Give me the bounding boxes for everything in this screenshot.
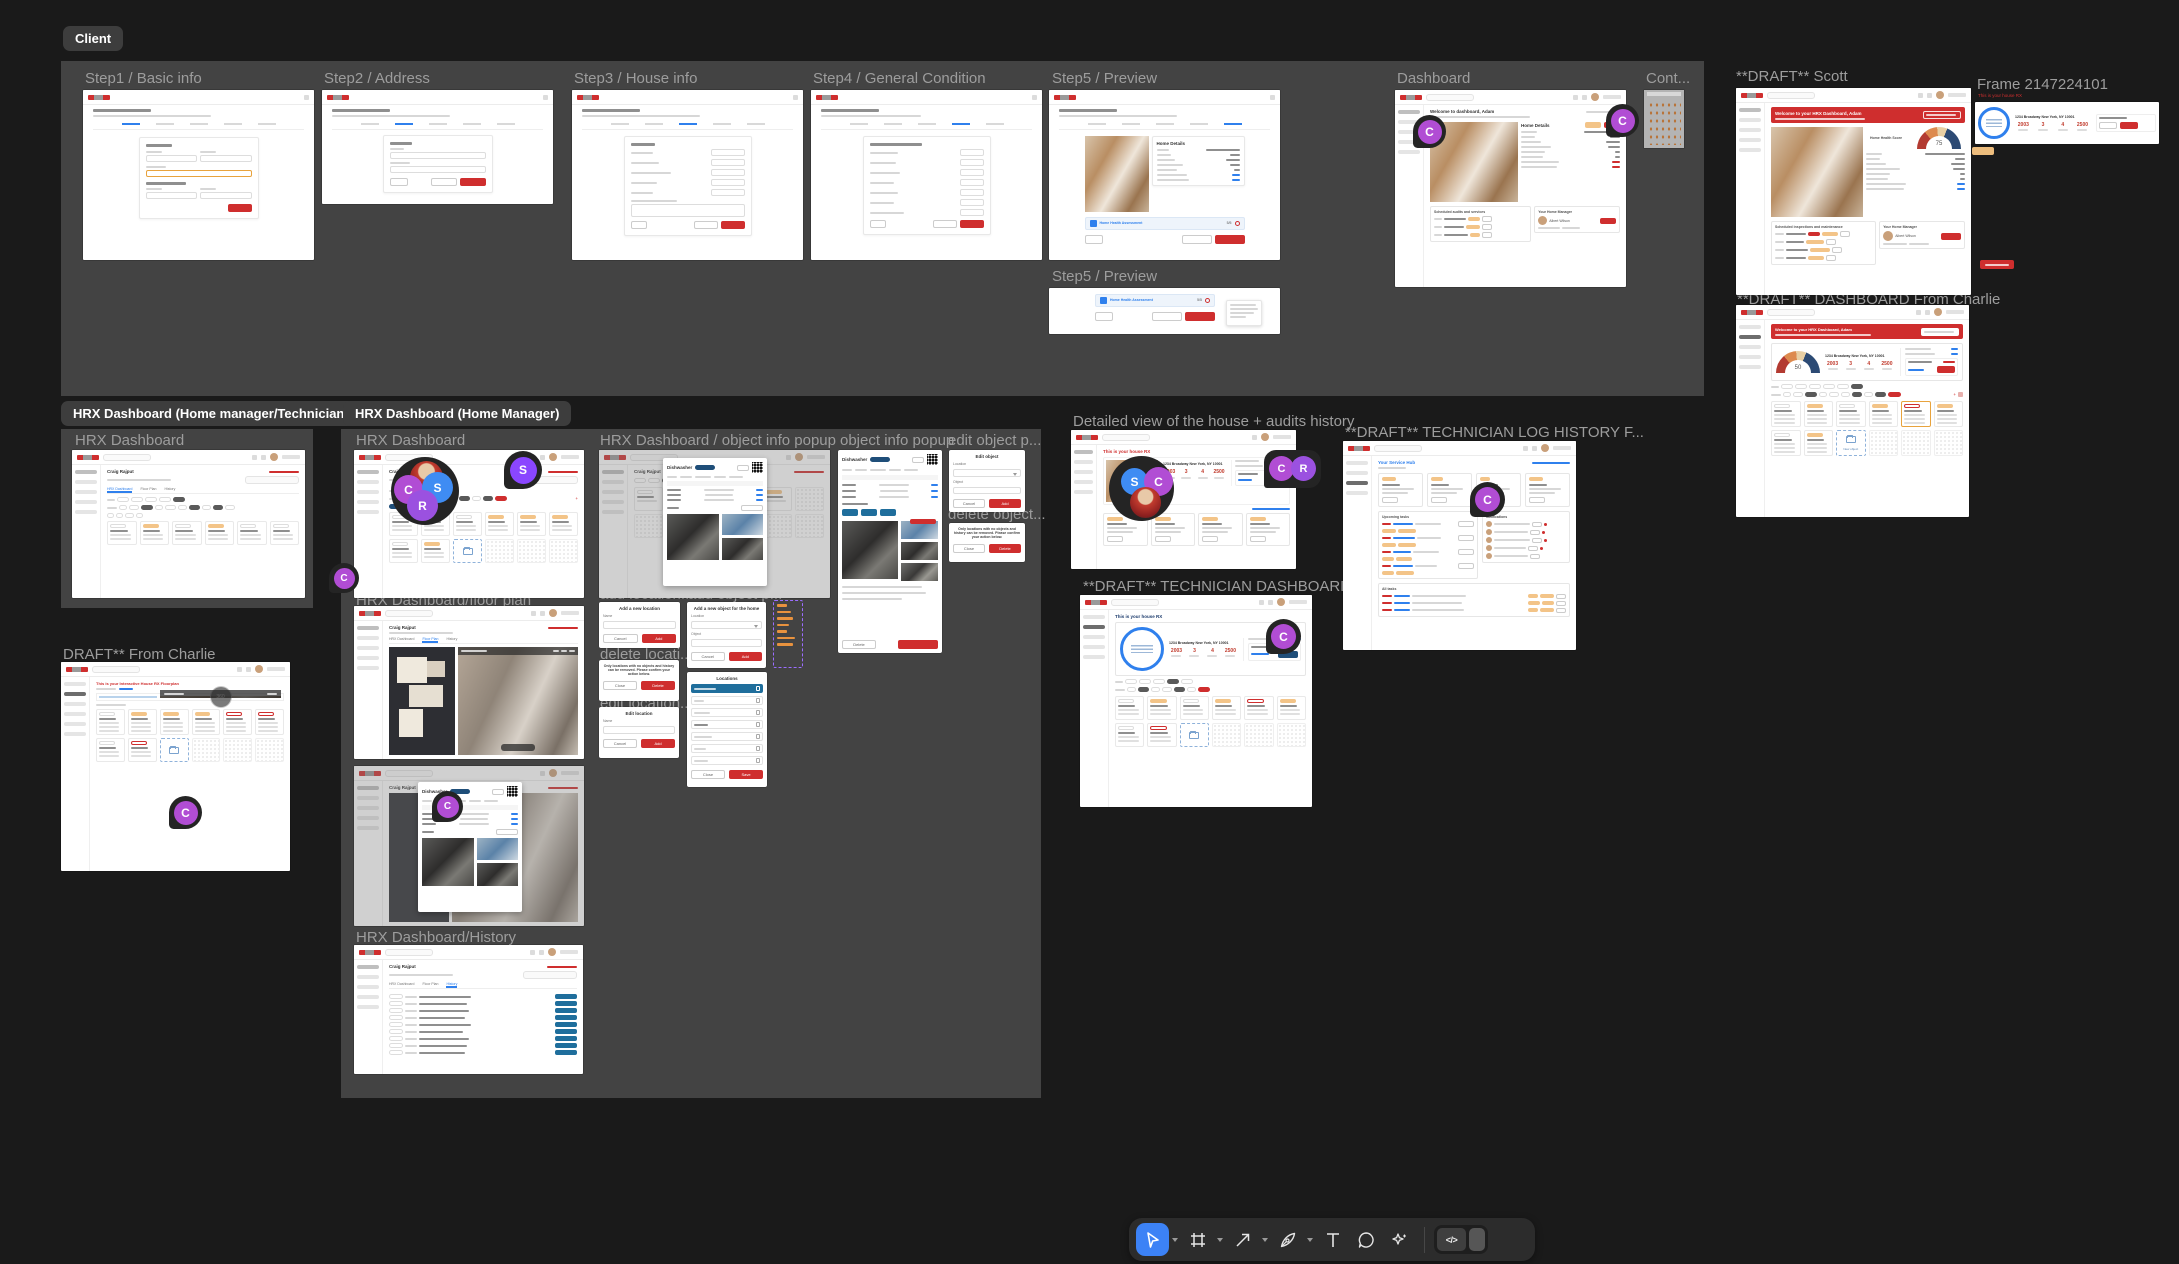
new-object-card [453,539,482,563]
frame214-red-caption: This is your house RX [1978,93,2022,98]
collaborator-avatar-photo[interactable] [1130,487,1161,518]
room-photo-360: 360 [160,696,281,698]
frame-label-hrx-object-info[interactable]: HRX Dashboard / object info popup [600,432,836,449]
arrow-icon [1233,1230,1253,1250]
alert-icon [1235,221,1240,226]
frame-tool-chevron[interactable] [1214,1223,1226,1256]
frame-label-draft-scott[interactable]: **DRAFT** Scott [1736,68,1848,85]
frame-thumb-locations[interactable]: Locations CloseSave [687,672,767,787]
collaborator-avatar-c[interactable]: C [1606,104,1639,137]
frame-thumb-step5b[interactable]: Home Health Assessment 5/5 [1049,288,1280,334]
qr-code [507,786,518,797]
dev-mode-knob[interactable] [1469,1228,1485,1251]
add-button-orange[interactable] [1972,147,1994,155]
frame-thumb-draft-scott[interactable]: Welcome to your HRX Dashboard, Adam Home… [1736,88,1971,295]
add-button: Add [642,634,677,643]
collaborator-cluster[interactable]: C S R [391,457,459,525]
score-donut [1978,107,2010,139]
frame-thumb-hrx-floorplan-popup[interactable]: Craig Rajput Dishwasher [354,766,584,926]
frame-label-step2[interactable]: Step2 / Address [324,70,430,87]
assessment-icon [1090,220,1097,227]
pen-icon [1278,1230,1298,1250]
move-tool[interactable] [1136,1223,1169,1256]
frame-thumb-delete-object[interactable]: Only locations with no objects and histo… [949,523,1025,562]
frame-thumb-edit-object[interactable]: Edit object Location Object CancelAdd [949,450,1025,512]
arrow-tool-chevron[interactable] [1259,1223,1271,1256]
frame-label-cont[interactable]: Cont... [1646,70,1690,87]
frame-thumb-draft-from-charlie[interactable]: This is your Interactive House RX Floorp… [61,662,290,871]
frame-thumb-add-location[interactable]: Add a new location Name CancelAdd [599,602,680,648]
frame-thumb-hrx-history[interactable]: Craig Rajput HRX DashboardFloor PlanHist… [354,945,583,1074]
welcome-banner: Welcome to your HRX Dashboard, Adam [1771,324,1963,339]
collaborator-avatar-r[interactable]: R [407,490,438,521]
frame-thumb-add-object[interactable]: Add a new object for the home Location O… [687,602,766,668]
frame-thumb-2147224101[interactable]: 1234 Broadway New York, NY 10001 2003 3 … [1975,102,2159,144]
frame-thumb-step1[interactable] [83,90,314,260]
frame-thumb-hrx-object-info[interactable]: Craig Rajput Dishwasher [599,450,830,598]
frame-label-step5b[interactable]: Step5 / Preview [1052,268,1157,285]
houserx-logo [327,95,349,100]
collaborator-avatar-s[interactable]: S [504,451,542,489]
dishwasher-popup: Dishwasher [663,458,767,586]
trash-icon [756,686,760,691]
sparkle-icon [1389,1230,1409,1250]
frame-thumb-step5[interactable]: Home Details Home Health Assessment 5/5 [1049,90,1280,260]
figma-toolbar: </> [1129,1218,1535,1261]
frame-label-step3[interactable]: Step3 / House info [574,70,697,87]
welcome-banner: Welcome to your HRX Dashboard, Adam [1771,107,1965,123]
health-gauge: 50 [1776,351,1820,374]
frame-thumb-draft-tech-log[interactable]: Your Service Hub Upcoming tasks [1343,441,1576,650]
new-object-card: New object [1836,430,1866,456]
frame-label-dashboard[interactable]: Dashboard [1397,70,1470,87]
collaborator-avatar-c[interactable]: C [432,791,463,822]
qr-code [927,454,938,465]
frame-thumb-step3[interactable] [572,90,803,260]
frame-thumb-hrx-tech[interactable]: Craig Rajput HRX DashboardFloor PlanHist… [72,450,305,598]
frame-icon [1188,1230,1208,1250]
dev-mode-toggle[interactable]: </> [1434,1225,1488,1254]
frame-label-step4[interactable]: Step4 / General Condition [813,70,986,87]
frame-label-step1[interactable]: Step1 / Basic info [85,70,202,87]
cursor-icon [1143,1230,1163,1250]
frame-thumb-step2[interactable] [322,90,553,204]
score-donut [1120,627,1164,671]
pen-tool[interactable] [1271,1223,1304,1256]
calendar-grid [1647,99,1681,145]
dishwasher-photo [842,521,898,579]
dishwasher-photo [422,838,474,886]
frame-thumb-step4[interactable] [811,90,1042,260]
floorplan-panel [389,647,455,755]
condition-tag [910,519,936,524]
menu-icon [304,95,309,100]
frame-label-detailed-view[interactable]: Detailed view of the house + audits hist… [1073,413,1354,430]
frame-thumb-delete-location[interactable]: Only locations with no objects and histo… [599,660,679,701]
section-badge-hm-technician[interactable]: HRX Dashboard (Home manager/Technician) [61,401,361,426]
text-icon [1323,1230,1343,1250]
frame-label-hrx-history[interactable]: HRX Dashboard/History [356,929,516,946]
frame-label-draft-tech-dash[interactable]: **DRAFT** TECHNICIAN DASHBOARD Fr... [1083,578,1381,595]
collaborator-avatar-c[interactable]: C [1470,482,1505,517]
houserx-logo [88,95,110,100]
collaborator-avatar-c[interactable]: C [329,563,359,593]
collaborator-pair[interactable]: C R [1264,450,1321,488]
collaborator-avatar-c[interactable]: C [169,796,202,829]
location-row-selected [691,684,763,693]
move-tool-chevron[interactable] [1169,1223,1181,1256]
frame-label-draft-tech-log[interactable]: **DRAFT** TECHNICIAN LOG HISTORY F... [1345,424,1644,441]
section-badge-home-manager[interactable]: HRX Dashboard (Home Manager) [343,401,571,426]
collaborator-avatar-c[interactable]: C [1413,115,1446,148]
cancel-button: Cancel [603,634,638,643]
room-360-view [458,647,578,755]
toolbar-divider [1424,1227,1425,1253]
frame-thumb-edit-location[interactable]: Edit location Name CancelAdd [599,707,679,758]
dev-mode-icon: </> [1437,1228,1466,1251]
collaborator-avatar-r[interactable]: R [1291,456,1316,481]
frame-tool[interactable] [1181,1223,1214,1256]
text-tool[interactable] [1316,1223,1349,1256]
collaborator-avatar-c[interactable]: C [1266,619,1301,654]
frame-thumb-hrx-hm[interactable]: Craig Rajput + [354,450,584,598]
house-photo [1085,136,1149,212]
red-pill-button[interactable] [1980,260,2014,269]
arrow-tool[interactable] [1226,1223,1259,1256]
frame-label-frame-2147224101[interactable]: Frame 2147224101 [1977,76,2108,93]
frame-label-draft-from-charlie[interactable]: DRAFT** From Charlie [63,646,216,663]
frame-label-object-info[interactable]: object info popup [840,432,954,449]
frame-label-step5[interactable]: Step5 / Preview [1052,70,1157,87]
frame-label-hrx-hm[interactable]: HRX Dashboard [356,432,465,449]
component-chip-list[interactable] [773,600,803,668]
collaborator-cluster[interactable]: S C [1109,456,1174,521]
frame-thumb-hrx-floorplan[interactable]: Craig Rajput HRX DashboardFloor PlanHist… [354,606,584,759]
frame-thumb-object-info[interactable]: Dishwasher Delete [838,450,942,653]
comment-tool[interactable] [1349,1223,1382,1256]
floor-plan [99,696,157,698]
frame-label-hrx-tech[interactable]: HRX Dashboard [75,432,184,449]
frame-thumb-draft-dashboard-charlie[interactable]: Welcome to your HRX Dashboard, Adam 50 1… [1736,305,1969,517]
comment-icon [1356,1230,1376,1250]
house-photo [1771,127,1863,217]
frame-thumb-detailed-view[interactable]: This is your house RX 1234 Broadway New … [1071,430,1296,569]
tooltip [1226,300,1262,326]
frame-label-edit-object[interactable]: edit object p... [948,432,1041,449]
health-gauge: 75 [1917,127,1961,150]
frame-thumb-cont[interactable] [1644,90,1684,148]
section-badge-client[interactable]: Client [63,26,123,51]
actions-tool[interactable] [1382,1223,1415,1256]
pen-tool-chevron[interactable] [1304,1223,1316,1256]
